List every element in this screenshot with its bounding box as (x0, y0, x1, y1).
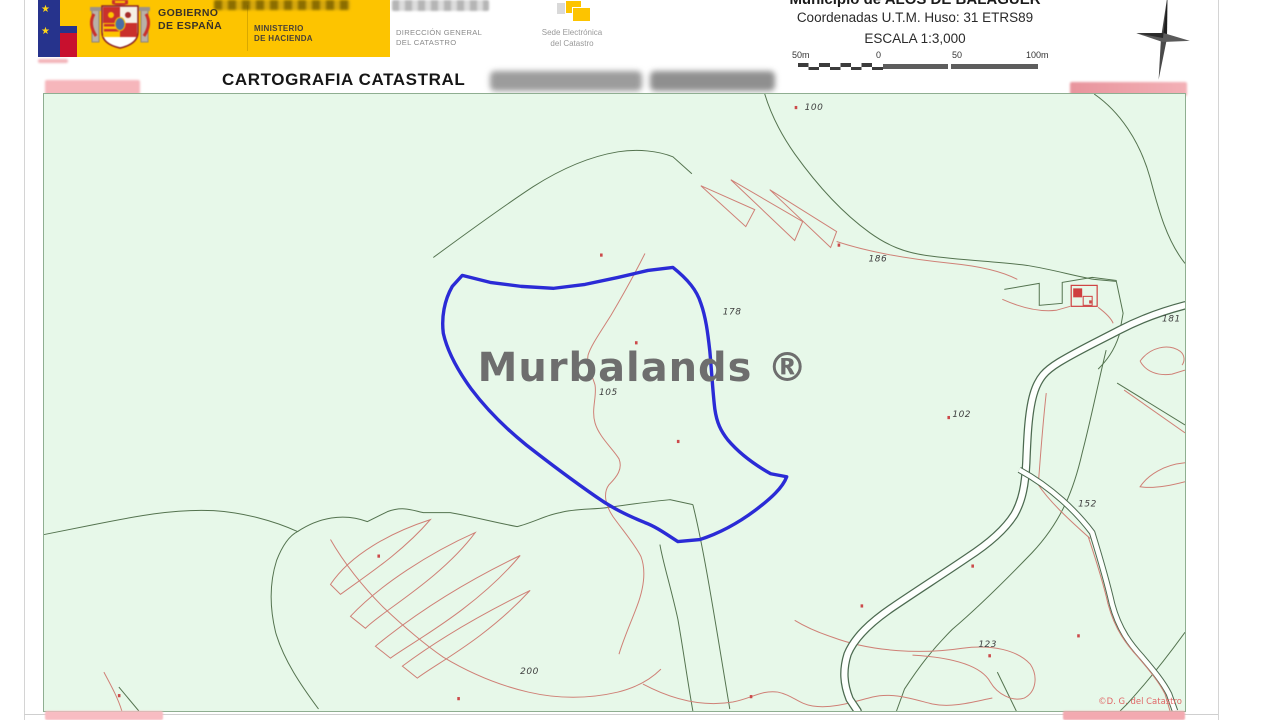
subparcel-mark (635, 341, 638, 344)
subparcel-mark (677, 440, 680, 443)
municipality-title: Municipio de ALOS DE BALAGUER (765, 0, 1065, 8)
parcel-number-label: 152 (1078, 500, 1097, 510)
parcel-number-label: 100 (805, 103, 824, 113)
scale-tick-label: 50 (952, 50, 962, 60)
page-frame-bottom (24, 714, 1218, 715)
cadastral-map: 100178105186102181152123200 Murbalands ®… (43, 93, 1186, 712)
scale-bar: 50m 0 50 100m (790, 50, 1050, 72)
scale-tick-label: 50m (792, 50, 810, 60)
north-arrow-icon (1128, 0, 1198, 84)
page-frame-left (24, 0, 25, 720)
gobierno-label: GOBIERNODE ESPAÑA (158, 7, 222, 33)
subparcel-mark (1089, 300, 1092, 303)
parcel-number-label: 102 (952, 410, 971, 420)
sede-electronica-icon (555, 0, 597, 24)
scale-label: ESCALA 1:3,000 (765, 31, 1065, 46)
subparcel-mark (795, 106, 798, 109)
cadastral-print-page: ★ ★ GOBIERNODE ESPAÑA (0, 0, 1280, 720)
subparcel-mark (118, 694, 121, 697)
building-footprint (1071, 285, 1097, 306)
scale-bar-solid (883, 64, 1038, 69)
redacted-header-line (392, 0, 489, 11)
redacted-ministry-line (214, 0, 350, 10)
page-title: CARTOGRAFIA CATASTRAL (222, 70, 465, 90)
spain-coat-of-arms-icon (84, 0, 156, 52)
utm-coordinates-label: Coordenadas U.T.M. Huso: 31 ETRS89 (765, 10, 1065, 25)
sede-electronica-label: Sede Electrónicadel Catastro (527, 28, 617, 49)
parcel-number-label: 200 (520, 667, 539, 677)
parcel-boundaries (44, 94, 1185, 711)
subparcel-mark (861, 604, 864, 607)
eu-spain-flag-icon: ★ ★ (38, 0, 77, 57)
subparcel-mark (988, 654, 991, 657)
parcel-number-label: 123 (978, 640, 997, 650)
redacted-footer-left (45, 711, 163, 720)
subparcel-mark (838, 244, 841, 247)
parcel-number-label: 181 (1162, 314, 1181, 324)
parcel-number-label: 178 (723, 307, 742, 317)
watermark: Murbalands ® (478, 345, 809, 391)
subparcel-mark (947, 416, 950, 419)
subparcel-mark (600, 253, 603, 256)
subparcel-mark (750, 695, 753, 698)
logo-divider (247, 5, 248, 51)
parcel-number-label: 186 (869, 254, 888, 264)
subparcel-mark (1077, 634, 1080, 637)
ministerio-label: MINISTERIODE HACIENDA (254, 24, 313, 44)
subparcel-mark (971, 564, 974, 567)
copyright-notice: ©D. G. del Catastro (1098, 696, 1182, 706)
subparcel-letter-marks (118, 106, 1092, 700)
scale-bar-checker (798, 63, 883, 70)
subparcel-mark (377, 555, 380, 558)
map-drawing: 100178105186102181152123200 Murbalands ®… (44, 94, 1185, 711)
redacted-parcel-reference (490, 71, 642, 91)
redacted-footer-right (1063, 711, 1185, 720)
subparcel-mark (457, 697, 460, 700)
scale-tick-label: 100m (1026, 50, 1049, 60)
redacted-parcel-reference (650, 71, 775, 91)
scale-tick-label: 0 (876, 50, 881, 60)
direccion-general-label: DIRECCIÓN GENERALDEL CATASTRO (396, 28, 482, 48)
redacted-pink-sliver (38, 59, 68, 63)
page-frame-right (1218, 0, 1219, 720)
